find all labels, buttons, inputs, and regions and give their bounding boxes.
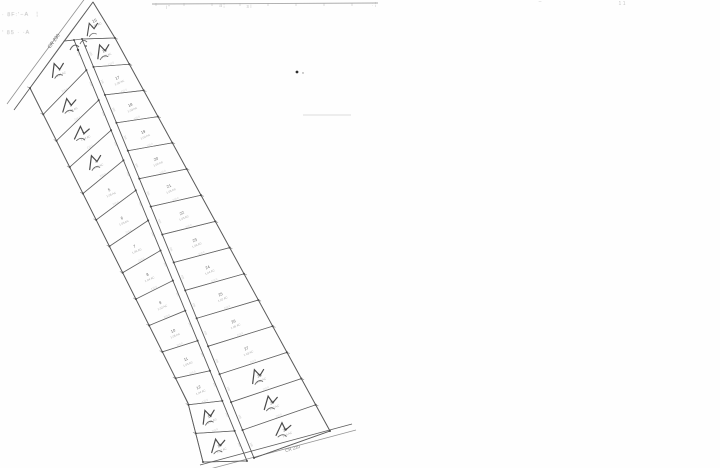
- border-text-fragment: : ¦: [372, 2, 376, 8]
- corner-dot: [219, 373, 221, 375]
- border-text-fragment: a ¦: [219, 3, 224, 9]
- corner-dot: [138, 178, 140, 180]
- corner-dot: [115, 122, 117, 124]
- border-text-fragment: 1 1: [619, 1, 626, 7]
- handwritten-mark: [89, 33, 96, 37]
- corner-dot: [329, 430, 331, 432]
- corner-dot: [77, 49, 79, 51]
- corner-dot: [184, 289, 186, 291]
- corner-dot: [135, 189, 137, 191]
- corner-dot: [221, 400, 223, 402]
- corner-dot: [173, 261, 175, 263]
- stray-ink-speck: [302, 72, 303, 73]
- apex-lot-boundary: [64, 2, 115, 41]
- stamp-line-1: · 8F:'−A ¦: [2, 12, 39, 19]
- border-text-fragment: –: [539, 0, 542, 5]
- corner-dot: [92, 66, 94, 68]
- corner-stamp-text: · 8F:'−A ¦ ' 85 · ·A: [2, 0, 40, 48]
- cr220-road-label: CR 220: [285, 444, 302, 453]
- corner-dot: [197, 340, 199, 342]
- corner-dot: [234, 430, 236, 432]
- corner-dot: [73, 39, 75, 41]
- border-text-fragment: i '': [166, 5, 170, 11]
- corner-dot: [202, 461, 204, 463]
- corner-dot: [159, 249, 161, 251]
- corner-dot: [85, 69, 87, 71]
- plat-scan-svg: i ''a ¦s i: ¦–1 1CR 230CR 220150.52 AC11…: [0, 0, 720, 468]
- corner-dot: [246, 460, 248, 462]
- corner-dot: [150, 206, 152, 208]
- lot-area-label: 1.02 AC: [157, 304, 168, 312]
- corner-dot: [147, 219, 149, 221]
- corner-dot: [98, 99, 100, 101]
- lot-area-label: 1.06 AC: [131, 247, 142, 255]
- corner-dot: [122, 159, 124, 161]
- stray-ink-speck: [296, 71, 299, 74]
- lot-area-label: 1.03 AC: [118, 219, 129, 227]
- lot-area-label: 1.08 AC: [67, 106, 78, 114]
- corner-dot: [253, 457, 255, 459]
- corner-dot: [127, 150, 129, 152]
- stamp-line-2: ' 85 · ·A: [2, 30, 39, 37]
- corner-dot: [196, 317, 198, 319]
- lot-area-label: 1.05 AC: [106, 191, 117, 199]
- corner-dot: [184, 310, 186, 312]
- scanned-plat-page: · 8F:'−A ¦ ' 85 · ·A i ''a ¦s i: ¦–1 1CR…: [0, 0, 720, 468]
- corner-dot: [104, 94, 106, 96]
- corner-dot: [230, 401, 232, 403]
- corner-dot: [85, 45, 87, 47]
- page-top-border-line: [152, 3, 378, 4]
- corner-dot: [207, 345, 209, 347]
- corner-dot: [241, 429, 243, 431]
- corner-dot: [209, 370, 211, 372]
- corner-dot: [161, 233, 163, 235]
- corner-dot: [110, 129, 112, 131]
- corner-dot: [172, 280, 174, 282]
- corner-dot: [81, 38, 83, 40]
- lot-area-label: 1.04 AC: [144, 275, 155, 283]
- border-text-fragment: s i: [247, 4, 252, 10]
